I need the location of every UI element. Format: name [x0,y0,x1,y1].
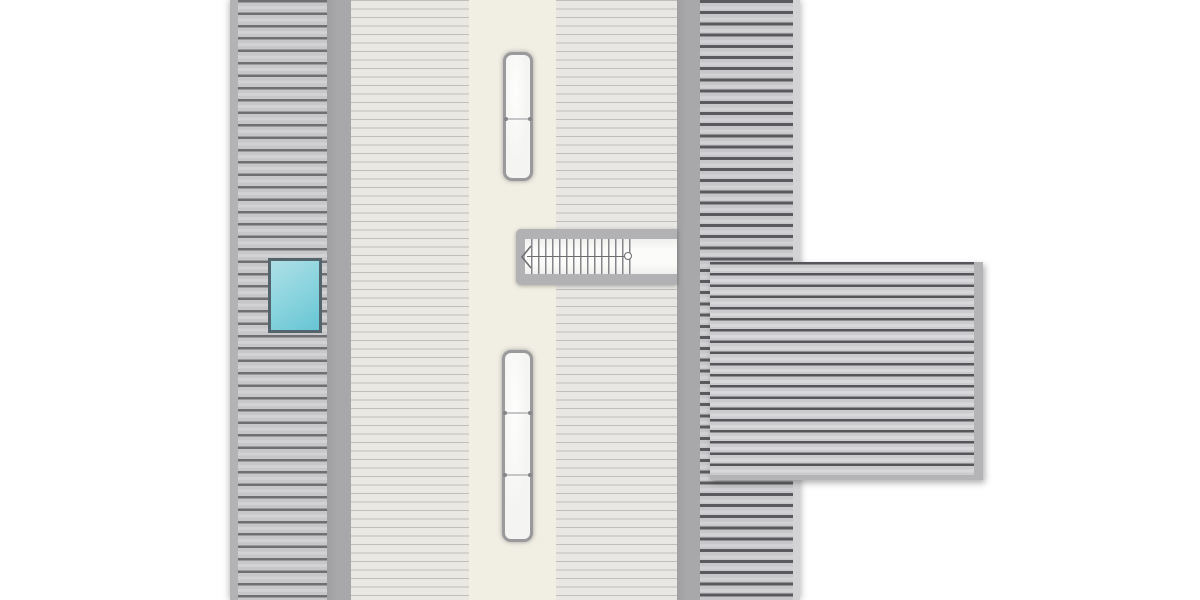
window-divider-notch [504,117,508,121]
roof-plan-canvas [0,0,1200,600]
wing-right-eave-band [974,262,983,480]
staircase [516,229,677,285]
stair-walkline-circle [624,252,632,260]
window-divider-notch [528,473,532,477]
center-left-roof-slope [351,0,469,600]
stair-direction-arrow-icon [521,245,532,269]
stair-bottom-rail [516,274,677,285]
roof-window-lower [502,350,533,542]
wing-roof-hatch [710,262,974,475]
left-ridge-band [327,0,351,600]
window-divider [505,474,530,476]
window-divider-notch [503,411,507,415]
window-divider-notch [528,411,532,415]
left-eave-band [230,0,238,600]
center-right-roof-slope [556,0,677,600]
stair-walkline [527,256,628,258]
window-divider [506,118,530,120]
wing-roof [710,262,983,480]
wing-bottom-eave-band [710,475,974,480]
window-divider [505,412,530,414]
skylight [268,258,322,333]
window-divider-notch [503,473,507,477]
window-divider-notch [528,117,532,121]
roof-window-upper [503,52,533,181]
stair-top-rail [516,229,677,239]
right-ridge-band [677,0,700,600]
